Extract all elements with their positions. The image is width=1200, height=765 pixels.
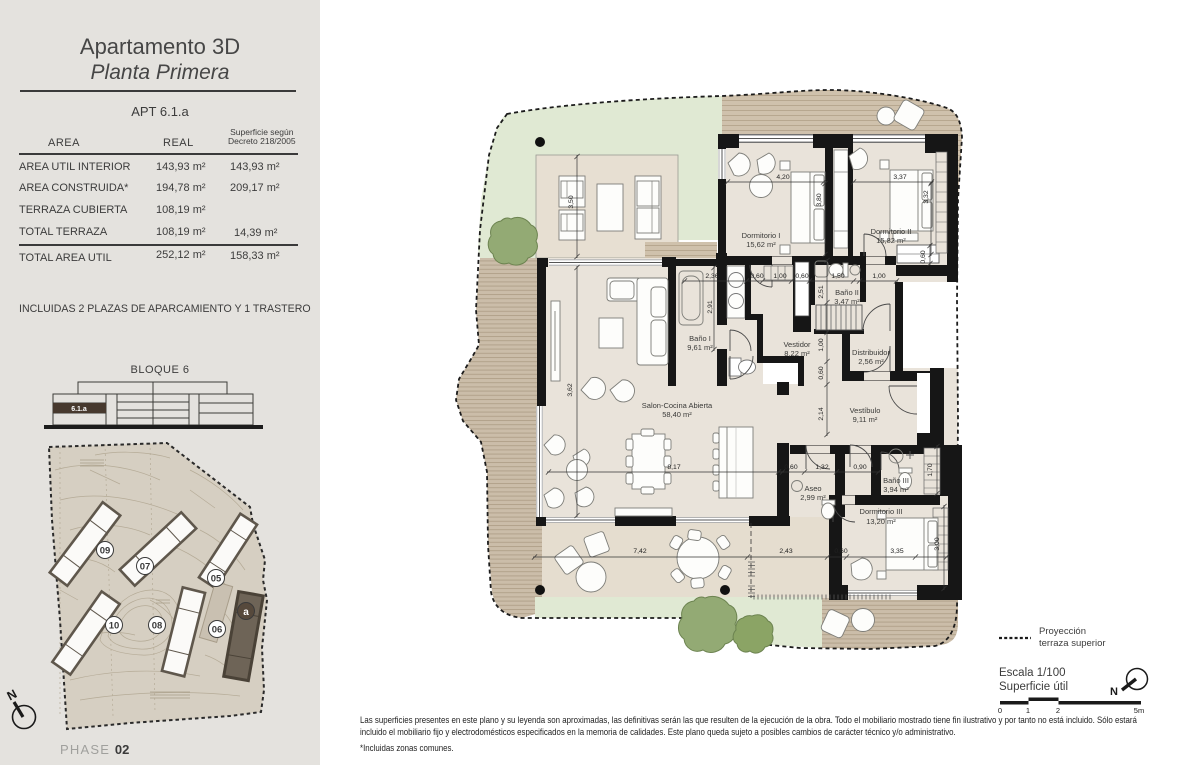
svg-text:08: 08 (152, 621, 163, 632)
svg-text:9,61 m²: 9,61 m² (687, 343, 713, 352)
svg-text:1: 1 (1026, 706, 1030, 715)
svg-text:15,82 m²: 15,82 m² (876, 236, 906, 245)
svg-text:3,62: 3,62 (567, 383, 574, 396)
svg-text:1,50: 1,50 (831, 273, 844, 280)
svg-text:Dormitorio II: Dormitorio II (871, 227, 912, 236)
svg-text:Aseo: Aseo (804, 484, 821, 493)
svg-text:10: 10 (109, 621, 120, 632)
svg-text:0,60: 0,60 (818, 366, 825, 379)
svg-text:N: N (5, 687, 20, 704)
svg-text:0,60: 0,60 (750, 273, 763, 280)
svg-text:3,94 m²: 3,94 m² (883, 485, 909, 494)
svg-text:3,37: 3,37 (893, 174, 906, 181)
svg-text:5m: 5m (1134, 706, 1144, 715)
svg-text:3,00: 3,00 (934, 537, 941, 550)
svg-text:7,42: 7,42 (633, 548, 646, 555)
svg-text:06: 06 (212, 625, 223, 636)
svg-text:Salon-Cocina Abierta: Salon-Cocina Abierta (642, 401, 713, 410)
svg-text:2: 2 (1056, 706, 1060, 715)
svg-text:3,47 m²: 3,47 m² (834, 297, 860, 306)
svg-text:0,90: 0,90 (853, 464, 866, 471)
svg-text:8,17: 8,17 (667, 464, 680, 471)
svg-text:Distribuidor: Distribuidor (852, 348, 890, 357)
svg-text:3,35: 3,35 (890, 548, 903, 555)
svg-text:1,00: 1,00 (818, 338, 825, 351)
svg-text:0,60: 0,60 (784, 464, 797, 471)
svg-text:1,00: 1,00 (773, 273, 786, 280)
svg-text:58,40 m²: 58,40 m² (662, 410, 692, 419)
svg-text:1,32: 1,32 (815, 464, 828, 471)
svg-text:2,14: 2,14 (818, 407, 825, 420)
svg-text:3,50: 3,50 (568, 195, 575, 208)
svg-text:2,51: 2,51 (818, 285, 825, 298)
svg-text:1,00: 1,00 (872, 273, 885, 280)
svg-text:0: 0 (998, 706, 1002, 715)
svg-text:13,20 m²: 13,20 m² (866, 517, 896, 526)
svg-text:Vestíbulo: Vestíbulo (850, 406, 881, 415)
svg-text:2,99 m²: 2,99 m² (800, 493, 826, 502)
svg-text:2,91: 2,91 (707, 300, 714, 313)
svg-text:2,36: 2,36 (705, 273, 718, 280)
svg-text:9,11 m²: 9,11 m² (853, 415, 878, 424)
svg-text:Baño I: Baño I (689, 334, 711, 343)
svg-text:05: 05 (211, 574, 222, 585)
svg-text:0,60: 0,60 (920, 250, 927, 263)
svg-text:Baño III: Baño III (883, 476, 909, 485)
svg-text:8,22 m²: 8,22 m² (784, 349, 810, 358)
svg-text:2,56 m²: 2,56 m² (858, 357, 884, 366)
svg-text:Dormitorio III: Dormitorio III (860, 507, 903, 516)
svg-text:4,20: 4,20 (776, 174, 789, 181)
svg-text:3,80: 3,80 (816, 193, 823, 206)
svg-text:09: 09 (100, 546, 111, 557)
svg-text:3,32: 3,32 (923, 190, 930, 203)
svg-text:N: N (1110, 686, 1118, 698)
svg-text:1,70: 1,70 (927, 463, 934, 476)
svg-text:Vestidor: Vestidor (783, 340, 811, 349)
svg-text:0,60: 0,60 (795, 273, 808, 280)
svg-text:6.1.a: 6.1.a (71, 406, 87, 413)
svg-text:2,43: 2,43 (779, 548, 792, 555)
svg-text:0,60: 0,60 (834, 548, 847, 555)
svg-text:a: a (243, 607, 249, 618)
svg-text:Baño II: Baño II (835, 288, 859, 297)
svg-text:07: 07 (140, 562, 151, 573)
svg-text:Dormitorio I: Dormitorio I (742, 231, 781, 240)
svg-text:15,62 m²: 15,62 m² (746, 240, 776, 249)
